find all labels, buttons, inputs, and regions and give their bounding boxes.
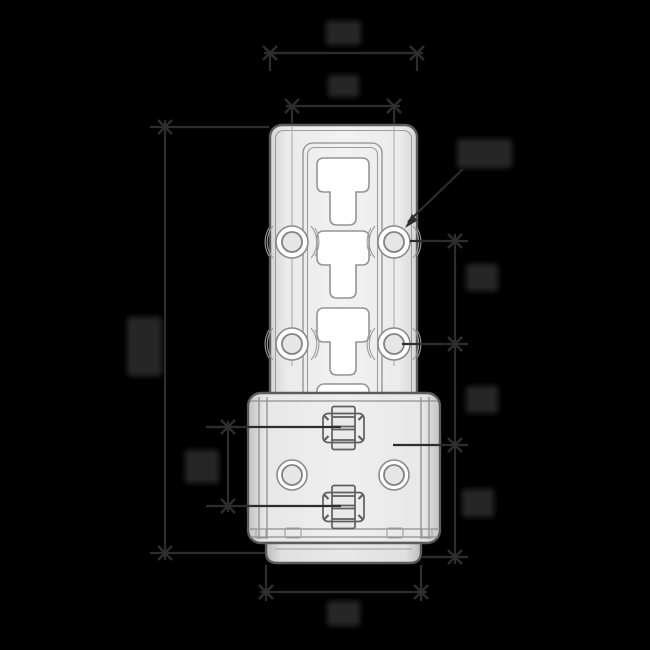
dim-label-blurred bbox=[466, 264, 498, 291]
dim-label-blurred bbox=[328, 75, 359, 97]
dim-label-blurred bbox=[127, 317, 162, 376]
dimension-top-outer-width bbox=[263, 46, 424, 71]
technical-drawing-canvas bbox=[0, 0, 650, 650]
lower-housing bbox=[248, 393, 440, 543]
dim-label-blurred bbox=[185, 450, 219, 483]
housing-hole-right bbox=[379, 460, 409, 490]
dim-label-blurred bbox=[326, 21, 361, 45]
dim-label-blurred bbox=[327, 601, 360, 626]
dim-label-blurred bbox=[462, 489, 494, 517]
dim-label-blurred bbox=[457, 139, 512, 168]
housing-hole-left bbox=[277, 460, 307, 490]
dimension-base-width bbox=[259, 565, 428, 601]
dimension-hole-column-spacing bbox=[285, 99, 401, 124]
base-foot bbox=[266, 543, 421, 563]
drawing-stage bbox=[0, 0, 650, 650]
dim-label-blurred bbox=[466, 386, 498, 413]
